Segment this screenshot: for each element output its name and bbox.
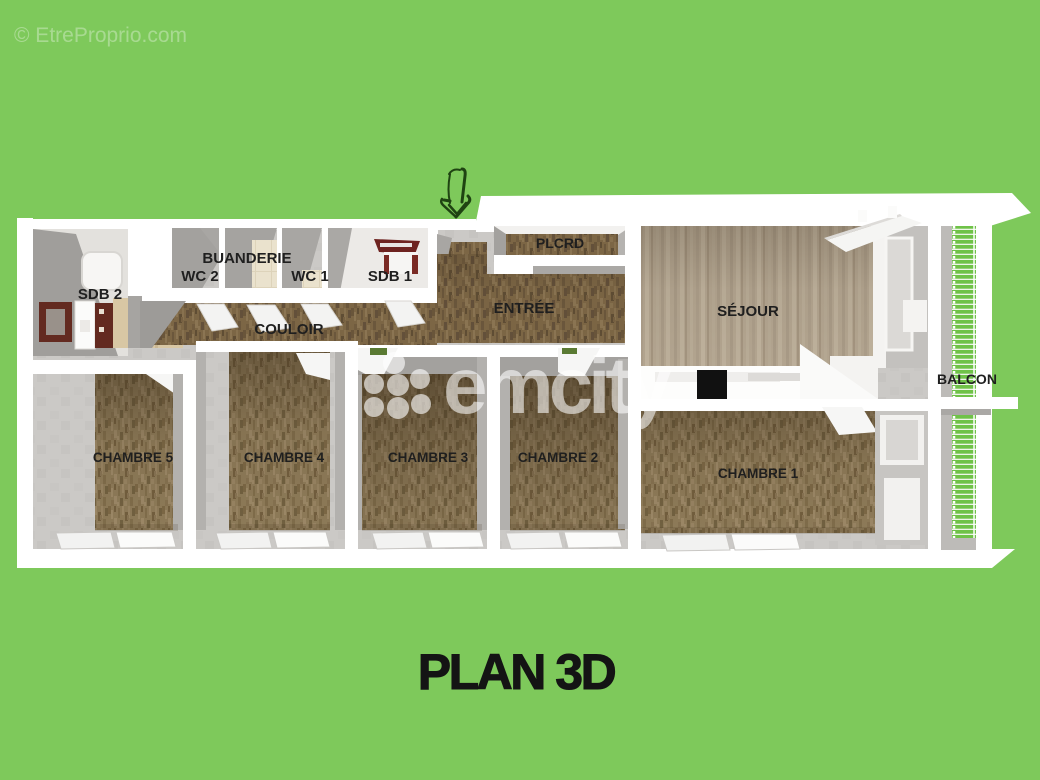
svg-text:CHAMBRE 3: CHAMBRE 3 xyxy=(388,450,469,465)
svg-text:WC 1: WC 1 xyxy=(291,268,329,285)
svg-text:SDB 1: SDB 1 xyxy=(368,268,412,285)
svg-text:PLCRD: PLCRD xyxy=(536,235,584,251)
svg-text:COULOIR: COULOIR xyxy=(254,321,323,338)
svg-text:CHAMBRE 1: CHAMBRE 1 xyxy=(718,466,799,481)
svg-text:SÉJOUR: SÉJOUR xyxy=(717,303,779,320)
svg-text:WC 2: WC 2 xyxy=(181,268,219,285)
svg-text:CHAMBRE 4: CHAMBRE 4 xyxy=(244,450,325,465)
svg-text:CHAMBRE 5: CHAMBRE 5 xyxy=(93,450,174,465)
svg-text:PLAN 3D: PLAN 3D xyxy=(418,644,616,700)
svg-text:emcity: emcity xyxy=(443,341,672,430)
svg-text:BUANDERIE: BUANDERIE xyxy=(202,250,291,267)
svg-text:© EtreProprio.com: © EtreProprio.com xyxy=(14,24,187,47)
svg-text:SDB 2: SDB 2 xyxy=(78,286,122,303)
svg-text:BALCON: BALCON xyxy=(937,371,997,387)
svg-text:ENTRÉE: ENTRÉE xyxy=(494,300,555,317)
svg-text:CHAMBRE 2: CHAMBRE 2 xyxy=(518,450,598,465)
